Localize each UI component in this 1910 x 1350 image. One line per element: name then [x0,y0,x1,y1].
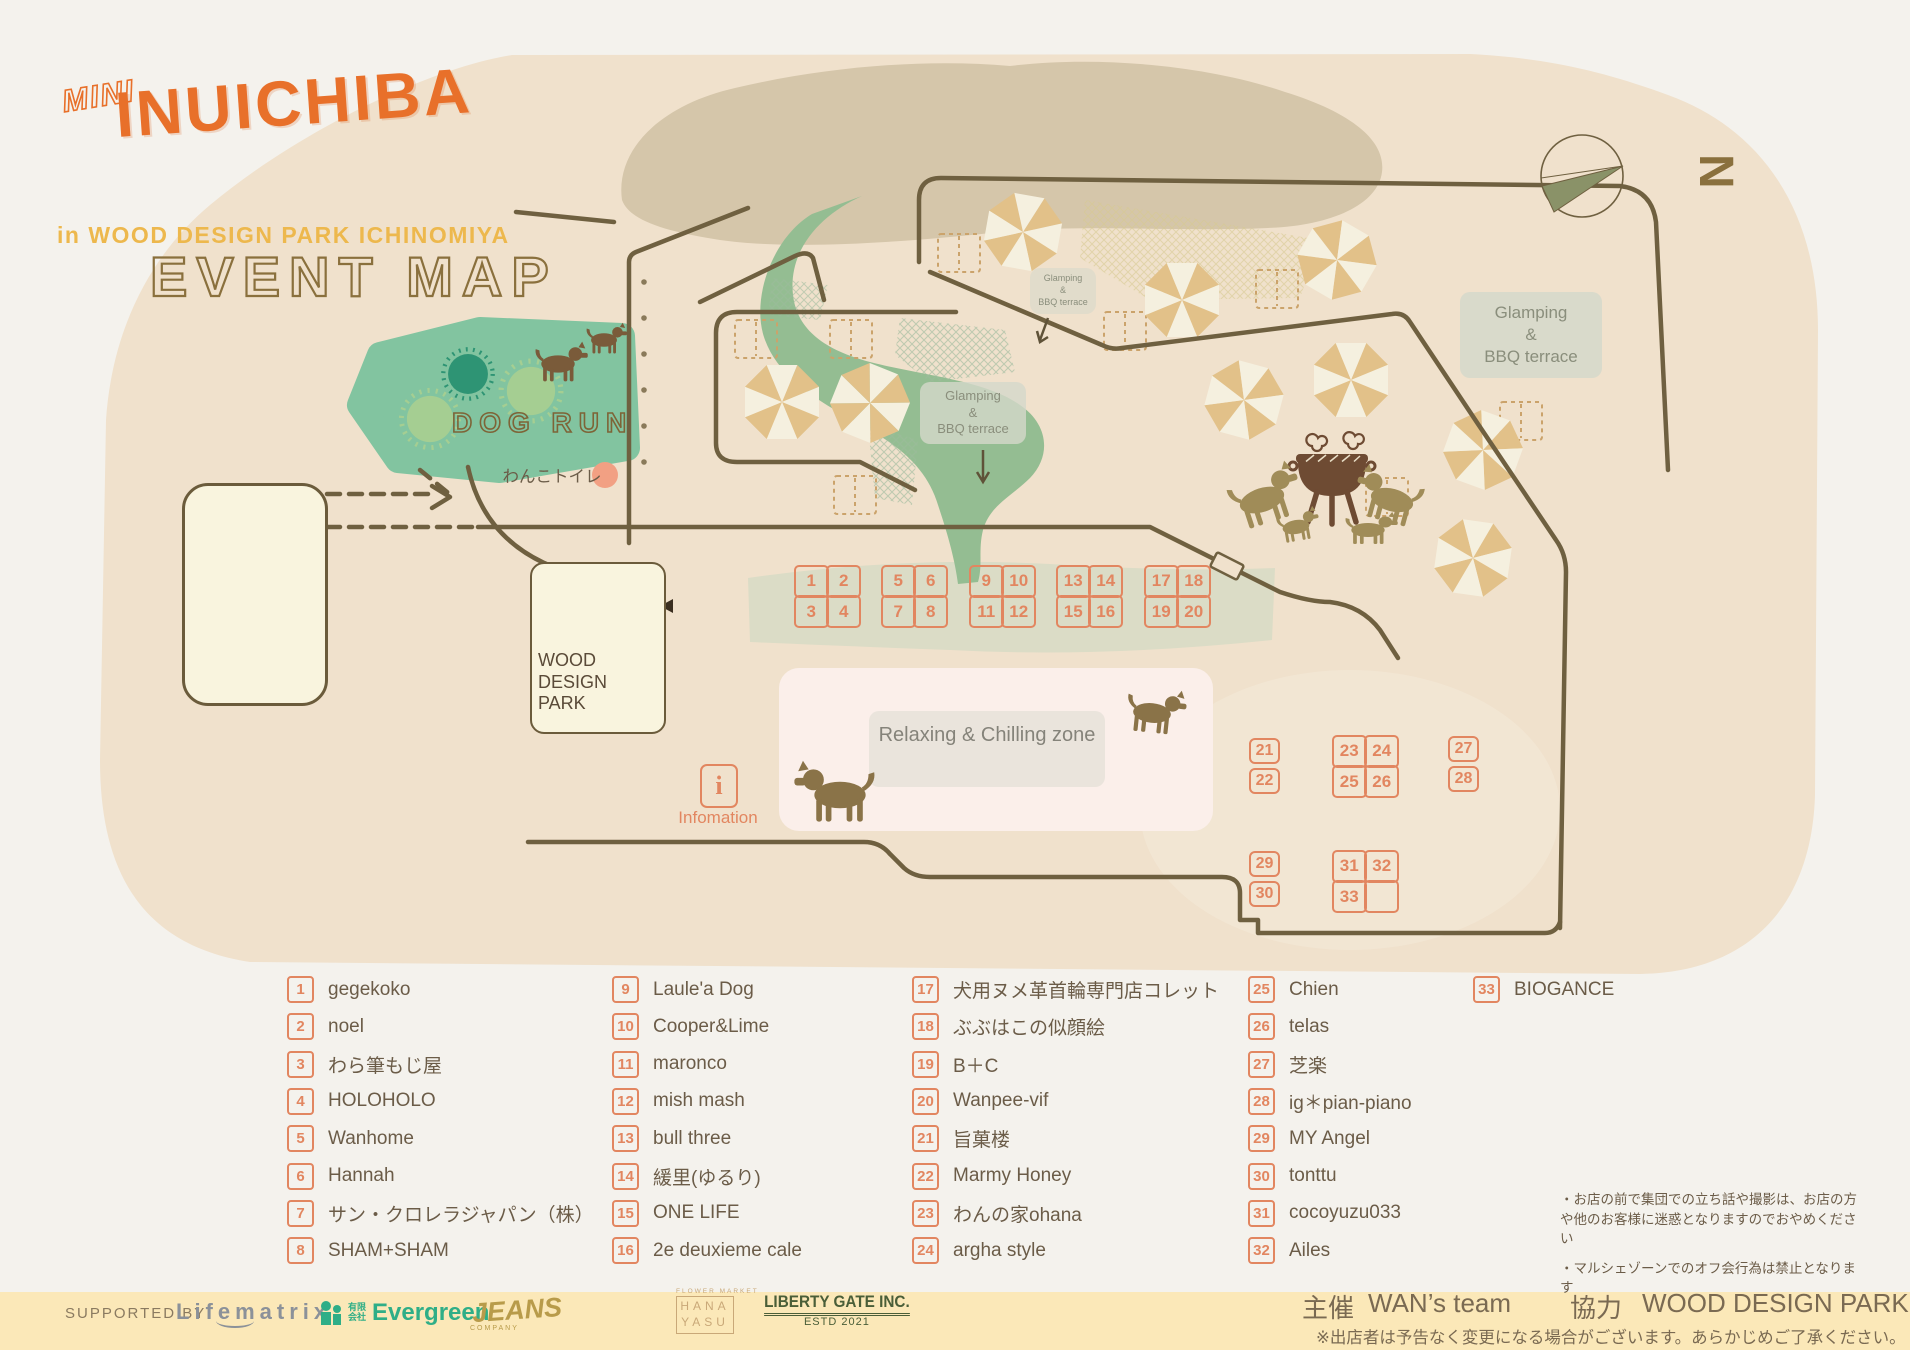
booth-7: 7 [881,595,916,628]
legend-item-name: maronco [653,1053,727,1075]
legend-item: 14緩里(ゆるり) [612,1163,761,1190]
legend-item-number: 31 [1248,1200,1275,1227]
legend-item-name: cocoyuzu033 [1289,1202,1401,1224]
legend-item-name: 旨菓楼 [953,1125,1010,1152]
booth-grid: 2728 [1448,736,1479,796]
legend-item: 18ぶぶはこの似顔絵 [912,1013,1105,1040]
compass-icon: N [1541,135,1742,217]
legend-item-name: noel [328,1016,364,1038]
legend-item-number: 6 [287,1163,314,1190]
booth-13: 13 [1056,565,1091,598]
legend-item: 30tonttu [1248,1163,1337,1190]
booth-15: 15 [1056,595,1091,628]
tree-icon [401,390,458,447]
legend-item-name: argha style [953,1240,1046,1262]
information-icon: i [700,764,738,808]
booth-empty [1364,880,1399,913]
legend-item: 3わら筆もじ屋 [287,1051,442,1078]
dog-silhouette-icon [1349,462,1427,529]
booth-26: 26 [1364,765,1399,798]
legend-item: 11maronco [612,1051,727,1078]
legend-item-name: ぶぶはこの似顔絵 [953,1013,1105,1040]
legend-item-name: telas [1289,1016,1329,1038]
booth-4: 4 [826,595,861,628]
legend-item: 28ig＊pian-piano [1248,1088,1412,1115]
legend-item-number: 5 [287,1125,314,1152]
relaxing-zone [779,668,1213,831]
dog-silhouette-icon [587,323,627,354]
legend-item-name: 2e deuxieme cale [653,1240,802,1262]
legend-item-number: 10 [612,1013,639,1040]
legend-item: 31cocoyuzu033 [1248,1200,1401,1227]
legend-item: 27芝楽 [1248,1051,1327,1078]
legend-item-name: gegekoko [328,979,410,1001]
glamping-line: Glamping [945,388,1001,405]
booth-5: 5 [881,565,916,598]
legend-item-name: 緩里(ゆるり) [653,1163,761,1190]
tent-site-icon [830,320,872,358]
tent-site-icon [1500,402,1542,440]
legend-item-name: bull three [653,1128,731,1150]
fence-dots [641,279,647,465]
tent-site-icon [735,320,777,358]
booth-grid: 5678 [882,566,947,627]
umbrella-icon [980,189,1066,275]
smoke-icon [1306,432,1364,451]
glamping-line: BBQ terrace [1038,297,1088,309]
liberty-gate-sub: ESTD 2021 [756,1316,918,1328]
glamping-line: & [969,405,978,422]
legend-item: 15ONE LIFE [612,1200,740,1227]
booth-30: 30 [1249,881,1280,907]
legend-item-number: 11 [612,1051,639,1078]
booth-grid: 313233 [1333,851,1398,912]
booth-23: 23 [1332,735,1367,768]
event-subtitle: in WOOD DESIGN PARK ICHINOMIYA [57,222,510,249]
booth-17: 17 [1144,565,1179,598]
booth-20: 20 [1176,595,1211,628]
legend-item-name: BIOGANCE [1514,979,1614,1001]
booth-10: 10 [1001,565,1036,598]
booth-grid: 1234 [795,566,860,627]
relaxing-zone-label-bg [869,711,1105,787]
legend-item-number: 9 [612,976,639,1003]
legend-item: 162e deuxieme cale [612,1237,802,1264]
booth-33: 33 [1332,880,1367,913]
booth-22: 22 [1249,768,1280,794]
booth-grid: 17181920 [1145,566,1210,627]
legend-item-number: 18 [912,1013,939,1040]
glamping-line: & [1525,324,1536,346]
legend-item-number: 19 [912,1051,939,1078]
tent-site-icon [1104,312,1146,350]
legend-item: 10Cooper&Lime [612,1013,769,1040]
legend-item-number: 26 [1248,1013,1275,1040]
legend-item-number: 29 [1248,1125,1275,1152]
legend-item: 7サン・クロレラジャパン（株） [287,1200,594,1227]
legend-item: 33BIOGANCE [1473,976,1614,1003]
tree-icon [501,361,561,421]
legend-item-number: 15 [612,1200,639,1227]
dog-silhouette-icon [1275,505,1322,544]
food-area-box [182,483,328,706]
legend-item-name: Chien [1289,979,1339,1001]
booth-29: 29 [1249,851,1280,877]
booth-27: 27 [1448,736,1479,762]
glamping-label-large: Glamping & BBQ terrace [1460,292,1602,378]
legend-item: 2noel [287,1013,364,1040]
hanayasu-box: HANA YASU [676,1296,734,1334]
booth-11: 11 [969,595,1004,628]
tent-site-icon [834,476,876,514]
glamping-line: Glamping [1044,273,1083,285]
umbrella-icon [1431,516,1515,600]
glamping-label-small: Glamping & BBQ terrace [1030,268,1096,314]
legend-item-number: 8 [287,1237,314,1264]
legend-item-name: Marmy Honey [953,1165,1071,1187]
booth-24: 24 [1364,735,1399,768]
booth-28: 28 [1448,766,1479,792]
legend-item-number: 3 [287,1051,314,1078]
umbrella-icon [745,365,819,439]
dog-silhouette-icon [1223,458,1308,532]
organizer-label: 主催 [1302,1288,1354,1325]
legend-item-name: サン・クロレラジャパン（株） [328,1200,594,1227]
legend-item-name: tonttu [1289,1165,1337,1187]
terrain-blob [621,62,1382,245]
booth-9: 9 [969,565,1004,598]
glamping-line: BBQ terrace [1484,346,1578,368]
legend-item-name: Ailes [1289,1240,1330,1262]
legend-item: 22Marmy Honey [912,1163,1071,1190]
wdp-line: PARK [538,693,607,715]
legend-item: 9Laule'a Dog [612,976,754,1003]
event-map-page: { "title": { "mini": "MINI", "main": "IN… [0,0,1910,1350]
legend-item: 24argha style [912,1237,1046,1264]
hanayasu-line: YASU [681,1315,729,1331]
compass-north-label: N [1689,154,1742,189]
booth-31: 31 [1332,850,1367,883]
legend-item: 5Wanhome [287,1125,414,1152]
legend-item-name: Wanhome [328,1128,414,1150]
dog-run-area [360,330,627,470]
legend-item-number: 30 [1248,1163,1275,1190]
umbrella-icon [1199,355,1290,446]
liberty-gate-logo: LIBERTY GATE INC. ESTD 2021 [756,1292,918,1328]
legend-item-number: 28 [1248,1088,1275,1115]
legend-item-number: 23 [912,1200,939,1227]
legend-item: 4HOLOHOLO [287,1088,436,1115]
booth-19: 19 [1144,595,1179,628]
hatch-patch [895,318,1015,382]
booth-12: 12 [1001,595,1036,628]
legend-item-number: 20 [912,1088,939,1115]
legend-item: 13bull three [612,1125,731,1152]
legend-item-number: 17 [912,976,939,1003]
booth-grid: 13141516 [1057,566,1122,627]
organizer-name: WAN’s team [1368,1288,1511,1319]
tent-site-icon [1366,478,1408,516]
booth-grid: 2930 [1249,851,1280,911]
booth-14: 14 [1088,565,1123,598]
hatch-patch [868,425,918,505]
legend-item-number: 13 [612,1125,639,1152]
legend-item-name: MY Angel [1289,1128,1370,1150]
legend-item-name: SHAM+SHAM [328,1240,449,1262]
legend-item-number: 24 [912,1237,939,1264]
legend-item-number: 33 [1473,976,1500,1003]
legend-item-number: 25 [1248,976,1275,1003]
hanayasu-top: FLOWER MARKET [676,1288,759,1295]
event-title: INUICHIBA [113,53,475,152]
legend-item-number: 32 [1248,1237,1275,1264]
glamping-label-medium: Glamping & BBQ terrace [920,382,1026,444]
wood-design-park-label: WOOD DESIGN PARK [538,650,607,715]
booth-8: 8 [913,595,948,628]
booth-2: 2 [826,565,861,598]
legend-item-name: 芝楽 [1289,1051,1327,1078]
umbrella-icon [1314,343,1388,417]
legend-item: 21旨菓楼 [912,1125,1010,1152]
legend-item-number: 1 [287,976,314,1003]
legend-item-name: Cooper&Lime [653,1016,769,1038]
legend-item-number: 27 [1248,1051,1275,1078]
booth-21: 21 [1249,738,1280,764]
booth-grid: 23242526 [1333,736,1398,797]
legend-item: 17犬用ヌメ革首輪専門店コレット [912,976,1219,1003]
legend-item-number: 21 [912,1125,939,1152]
tent-site-icon [1256,270,1298,308]
dog-silhouette-icon [1346,512,1398,544]
booth-16: 16 [1088,595,1123,628]
legend-item: 6Hannah [287,1163,395,1190]
footer-disclaimer: ※出店者は予告なく変更になる場合がございます。あらかじめご了承ください。 [1316,1324,1906,1348]
information-label: Infomation [663,808,773,828]
map-ground [100,54,1818,974]
booth-25: 25 [1332,765,1367,798]
booth-grid: 2122 [1249,738,1280,798]
legend-item-number: 7 [287,1200,314,1227]
legend-item-number: 22 [912,1163,939,1190]
dog-run-label: DOG RUN [452,407,633,438]
legend-item-name: ONE LIFE [653,1202,740,1224]
hanayasu-line: HANA [680,1299,729,1315]
jeans-logo-sub: COMPANY [470,1325,519,1332]
legend-item-name: わら筆もじ屋 [328,1051,442,1078]
bbq-grill-icon [1289,432,1375,524]
legend-item: 1gegekoko [287,976,410,1003]
wdp-line: WOOD [538,650,607,672]
umbrella-icon [822,355,918,451]
legend-item: 25Chien [1248,976,1339,1003]
legend-item-name: mish mash [653,1090,745,1112]
legend-item: 32Ailes [1248,1237,1330,1264]
legend-item-name: Wanpee-vif [953,1090,1048,1112]
cooperation-label: 協力 [1570,1288,1622,1325]
dog-silhouette-icon [794,761,874,822]
booth-18: 18 [1176,565,1211,598]
dog-toilet-marker [592,462,618,488]
evergreen-prefix: 有限会社 [348,1303,368,1323]
dog-silhouette-icon [1125,685,1188,736]
glamping-line: Glamping [1495,302,1568,324]
legend-item: 19B＋C [912,1051,998,1078]
wdp-line: DESIGN [538,672,607,694]
legend-item-number: 16 [612,1237,639,1264]
legend-item-name: B＋C [953,1051,998,1078]
booth-32: 32 [1364,850,1399,883]
bridge [1210,552,1244,580]
legend-item-name: ig＊pian-piano [1289,1088,1412,1115]
relaxing-zone-label: Relaxing & Chilling zone [869,724,1105,747]
legend-item-name: 犬用ヌメ革首輪専門店コレット [953,976,1219,1003]
dog-toilet-label: わんこトイレ [503,468,602,486]
umbrella-icon [1436,403,1531,498]
evergreen-icon [318,1300,344,1326]
booth-3: 3 [794,595,829,628]
jeans-logo: JEANS [471,1292,563,1329]
legend-item-name: わんの家ohana [953,1200,1082,1227]
hatch-patch [768,278,828,320]
cooperation-name: WOOD DESIGN PARK [1642,1288,1909,1319]
legend-item-name: Laule'a Dog [653,979,754,1001]
glamping-line: BBQ terrace [937,421,1009,438]
legend-item: 26telas [1248,1013,1329,1040]
legend-item: 23わんの家ohana [912,1200,1082,1227]
booth-1: 1 [794,565,829,598]
legend-item: 20Wanpee-vif [912,1088,1048,1115]
event-map-title: EVENT MAP [150,245,558,308]
tree-icon [443,349,492,398]
booth-grid: 9101112 [970,566,1035,627]
booth-6: 6 [913,565,948,598]
umbrella-icon [1145,263,1219,337]
legend-item: 8SHAM+SHAM [287,1237,449,1264]
glamping-line: & [1060,285,1066,297]
liberty-gate-name: LIBERTY GATE INC. [764,1292,910,1316]
legend-item-number: 12 [612,1088,639,1115]
tent-site-icon [938,234,980,272]
umbrella-icon [1286,209,1387,310]
legend-item-number: 14 [612,1163,639,1190]
hatch-patch [1080,200,1320,300]
hanayasu-logo: FLOWER MARKET HANA YASU [676,1288,759,1334]
legend-item-number: 4 [287,1088,314,1115]
note-line: ・お店の前で集団での立ち話や撮影は、お店の方や他のお客様に迷惑となりますのでおや… [1560,1190,1862,1249]
legend-item-name: Hannah [328,1165,395,1187]
legend-item-name: HOLOHOLO [328,1090,436,1112]
dog-silhouette-icon [536,342,588,382]
legend-item: 29MY Angel [1248,1125,1370,1152]
evergreen-logo: 有限会社 Evergreen [318,1299,489,1327]
legend-item: 12mish mash [612,1088,745,1115]
lifematrix-smile-icon [216,1314,254,1328]
legend-item-number: 2 [287,1013,314,1040]
